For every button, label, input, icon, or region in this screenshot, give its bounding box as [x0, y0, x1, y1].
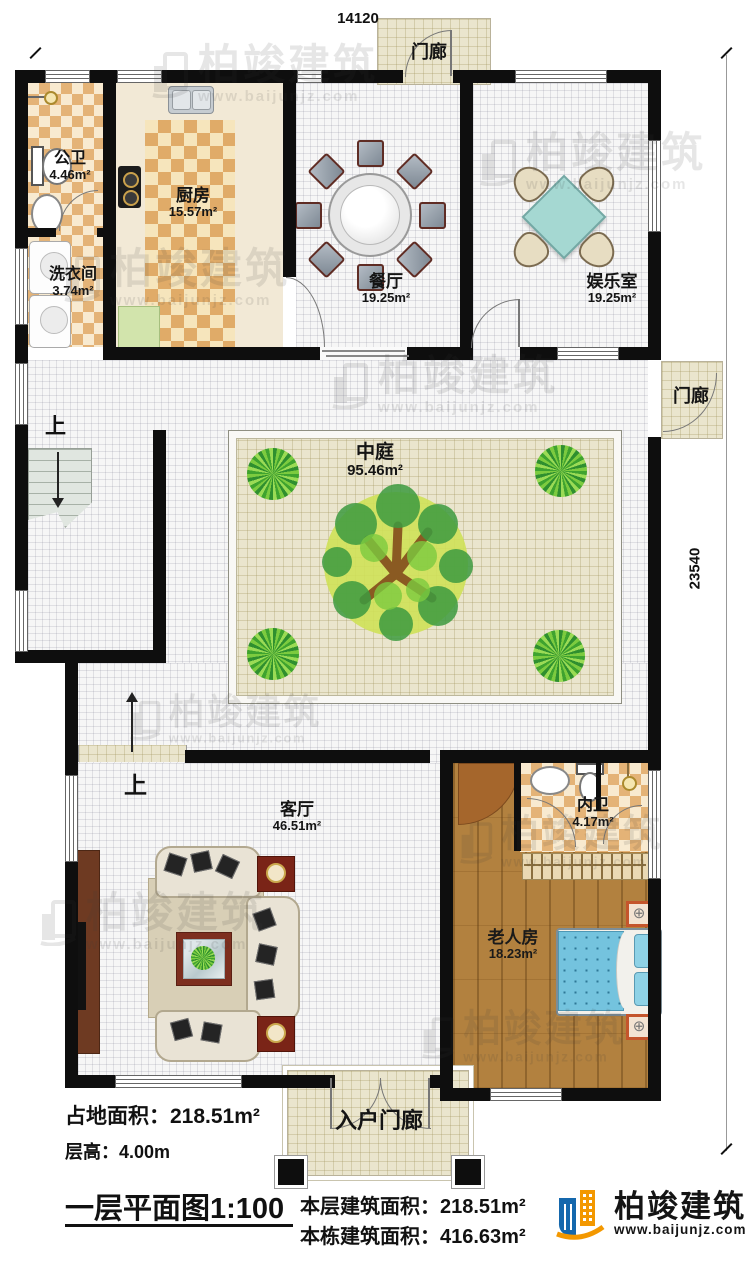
wall	[460, 83, 473, 360]
door-leaf	[428, 1078, 430, 1128]
dimension-line	[726, 55, 727, 1151]
wall	[160, 70, 297, 83]
wall	[648, 83, 661, 140]
wall	[103, 83, 116, 360]
room-area: 19.25m²	[587, 291, 638, 306]
building-area-value: 416.63m²	[440, 1226, 526, 1248]
wall	[97, 228, 105, 237]
window	[65, 775, 78, 862]
wall	[560, 1088, 661, 1101]
wall	[15, 347, 28, 360]
room-label-dining: 餐厅19.25m²	[362, 272, 410, 306]
sliding-door-dining	[320, 347, 407, 360]
floor-height-label: 层高：	[65, 1142, 119, 1162]
porch-column	[452, 1156, 484, 1188]
living-up-label: 上	[124, 766, 147, 800]
room-area: 95.46m²	[347, 463, 403, 480]
side-table-ornament	[266, 863, 286, 883]
window	[15, 363, 28, 425]
wardrobe-rod	[524, 864, 646, 866]
wall	[283, 83, 296, 277]
room-label-kitchen: 厨房15.57m²	[169, 186, 217, 220]
corner-plant	[533, 630, 585, 682]
ensuite-sink-icon	[530, 766, 570, 795]
floor-plan-canvas: ⊕ ⊕ 公卫4.46m² 洗衣间3.74m² 厨房15.57m² 餐厅19.25…	[0, 0, 750, 1263]
window	[45, 70, 90, 83]
sofa-pillow	[190, 850, 213, 873]
dimension-top: 14120	[318, 10, 398, 27]
stove-burner	[123, 190, 139, 206]
wall	[15, 423, 28, 590]
building-area-label: 本栋建筑面积：	[300, 1226, 440, 1248]
wall	[440, 763, 453, 1088]
door-leaf	[330, 1078, 332, 1128]
room-area: 46.51m²	[273, 819, 321, 834]
room-label-public-bath: 公卫4.46m²	[49, 150, 90, 182]
floor-height-text: 层高：4.00m	[65, 1138, 170, 1164]
window	[117, 70, 162, 83]
window	[515, 70, 607, 83]
room-area: 4.46m²	[49, 168, 90, 183]
company-logo: 柏竣建筑 www.baijunjz.com	[552, 1186, 747, 1242]
washer-drum-icon	[40, 306, 68, 334]
room-name: 老人房	[488, 928, 539, 947]
corridor-arrowhead	[126, 692, 138, 702]
wall	[15, 650, 166, 663]
window	[557, 347, 619, 360]
corner-plant	[247, 448, 299, 500]
company-logo-name: 柏竣建筑	[614, 1191, 747, 1222]
corridor-arrow	[131, 700, 133, 752]
sofa-pillow	[200, 1021, 222, 1043]
floor-height-value: 4.00m	[119, 1142, 170, 1162]
wall	[185, 750, 430, 763]
stairs-arrow	[57, 452, 59, 498]
floor-area-text: 本层建筑面积：218.51m²	[300, 1190, 526, 1219]
company-logo-icon	[552, 1186, 606, 1242]
stove-burner	[123, 172, 139, 188]
porch-column	[275, 1156, 307, 1188]
porch-right-label: 门廊	[673, 382, 709, 408]
bed-sheet-fold	[616, 931, 633, 1009]
room-name: 厨房	[169, 186, 217, 205]
room-label-laundry: 洗衣间3.74m²	[49, 266, 97, 298]
stairs-up-label: 上	[45, 410, 66, 440]
room-name: 中庭	[347, 442, 403, 463]
room-name: 内卫	[572, 797, 613, 815]
dining-chair	[419, 202, 446, 229]
bed-mattress	[558, 931, 624, 1011]
land-area-label: 占地面积：	[65, 1105, 170, 1128]
wall	[88, 70, 117, 83]
tv-icon	[78, 922, 86, 1010]
wall	[605, 70, 661, 83]
wall	[520, 347, 557, 360]
wall	[65, 1075, 115, 1088]
window	[490, 1088, 562, 1101]
window	[648, 140, 661, 232]
window	[15, 248, 28, 325]
wall	[320, 70, 403, 83]
sliding-door-line	[326, 355, 409, 357]
sofa-pillow	[255, 943, 278, 966]
room-label-atrium: 中庭95.46m²	[347, 442, 403, 480]
lamp-icon	[622, 776, 637, 791]
corner-plant	[247, 628, 299, 680]
wall	[65, 860, 78, 1088]
door-leaf	[518, 299, 520, 347]
land-area-value: 218.51m²	[170, 1105, 260, 1128]
dining-chair	[295, 202, 322, 229]
wall	[15, 70, 28, 248]
stairs-arrowhead	[52, 498, 64, 508]
wall	[107, 347, 320, 360]
wall	[514, 763, 521, 851]
plan-title: 一层平面图1:100	[65, 1185, 284, 1227]
room-area: 19.25m²	[362, 291, 410, 306]
room-name: 公卫	[49, 150, 90, 168]
kitchen-sink-basin	[172, 90, 191, 110]
wall	[65, 663, 78, 775]
room-area: 4.17m²	[572, 815, 613, 830]
wall	[440, 1088, 490, 1101]
door-leaf	[450, 30, 452, 76]
building-area-text: 本栋建筑面积：416.63m²	[300, 1220, 526, 1249]
corner-plant	[535, 445, 587, 497]
land-area-text: 占地面积：218.51m²	[65, 1100, 260, 1130]
room-name: 洗衣间	[49, 266, 97, 284]
porch-entrance-label: 入户门廊	[335, 1103, 423, 1135]
window	[297, 70, 322, 83]
wall	[440, 750, 661, 763]
wall	[617, 347, 661, 360]
wall	[648, 877, 661, 1101]
wall	[648, 230, 661, 360]
wall	[648, 437, 661, 770]
wall	[453, 70, 515, 83]
room-name: 餐厅	[362, 272, 410, 291]
room-area: 18.23m²	[488, 947, 539, 962]
room-area: 15.57m²	[169, 205, 217, 220]
window	[15, 590, 28, 652]
dining-chair	[357, 140, 384, 167]
floor-area-label: 本层建筑面积：	[300, 1196, 440, 1218]
wall	[240, 1075, 335, 1088]
sofa-pillow	[254, 979, 275, 1000]
porch-top-label: 门廊	[411, 38, 447, 64]
wardrobe	[522, 853, 650, 880]
side-table-ornament	[266, 1023, 286, 1043]
floor-area-value: 218.51m²	[440, 1196, 526, 1218]
kitchen-sink-basin	[192, 90, 211, 110]
room-label-bedroom: 老人房18.23m²	[488, 928, 539, 962]
room-label-living: 客厅46.51m²	[273, 800, 321, 834]
wall	[28, 228, 56, 237]
window	[648, 770, 661, 879]
wall	[153, 430, 166, 663]
kitchen-mat	[118, 306, 160, 352]
company-logo-url: www.baijunjz.com	[614, 1222, 747, 1237]
lamp-icon	[627, 763, 629, 777]
atrium-tree	[310, 478, 482, 650]
dimension-tick	[29, 47, 41, 59]
table-plant	[191, 946, 215, 970]
room-name: 娱乐室	[587, 272, 638, 291]
window	[115, 1075, 242, 1088]
sliding-door-line	[322, 350, 405, 352]
room-name: 客厅	[273, 800, 321, 819]
room-label-game-room: 娱乐室19.25m²	[587, 272, 638, 306]
room-label-ensuite: 内卫4.17m²	[572, 797, 613, 829]
dining-table	[328, 173, 412, 257]
plan-title-underline	[65, 1224, 293, 1227]
room-area: 3.74m²	[49, 284, 97, 299]
dimension-right: 23540	[687, 529, 704, 609]
towel-ring-icon	[44, 91, 58, 105]
